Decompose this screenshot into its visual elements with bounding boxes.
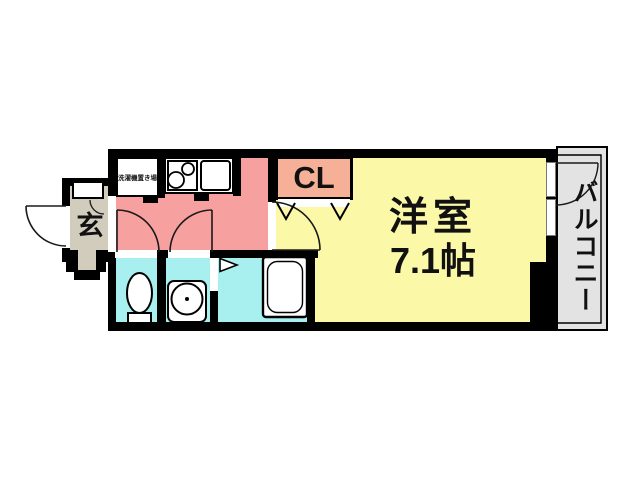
balcony-label: バルコニー xyxy=(562,165,602,327)
wall-entrance-step3 xyxy=(74,272,100,280)
balcony-window-upper xyxy=(546,162,556,197)
front-door-swing xyxy=(26,206,66,246)
wall-toilet-wash xyxy=(157,250,166,331)
wall-bottom xyxy=(108,322,556,331)
doorway-toilet xyxy=(115,250,157,258)
western-room-size-label: 7.1帖 xyxy=(333,232,533,284)
floorplan-canvas: 洋室 7.1帖 CL 玄 バルコニー 洗濯機置き場 xyxy=(0,0,640,480)
entrance-floor-step xyxy=(78,250,96,270)
bathroom-area xyxy=(218,258,307,322)
sink-box xyxy=(200,160,231,191)
doorway-bathroom xyxy=(210,258,218,291)
washroom-area xyxy=(166,258,210,322)
balcony-window-lower xyxy=(546,199,556,236)
doorway-front-door xyxy=(62,206,70,248)
doorway-washroom xyxy=(168,250,210,258)
wall-nub-2 xyxy=(194,193,209,201)
stove-box xyxy=(167,160,198,191)
wall-stub-counter xyxy=(233,149,241,196)
washer-space-label: 洗濯機置き場 xyxy=(117,172,158,182)
shoe-cabinet xyxy=(72,181,104,199)
wall-right-lower xyxy=(530,262,556,331)
wall-bath-right xyxy=(307,250,315,331)
toilet-room-area xyxy=(116,258,157,322)
closet-label: CL xyxy=(275,160,353,196)
entrance-label: 玄 xyxy=(70,204,110,243)
doorway-western-room xyxy=(268,202,276,250)
